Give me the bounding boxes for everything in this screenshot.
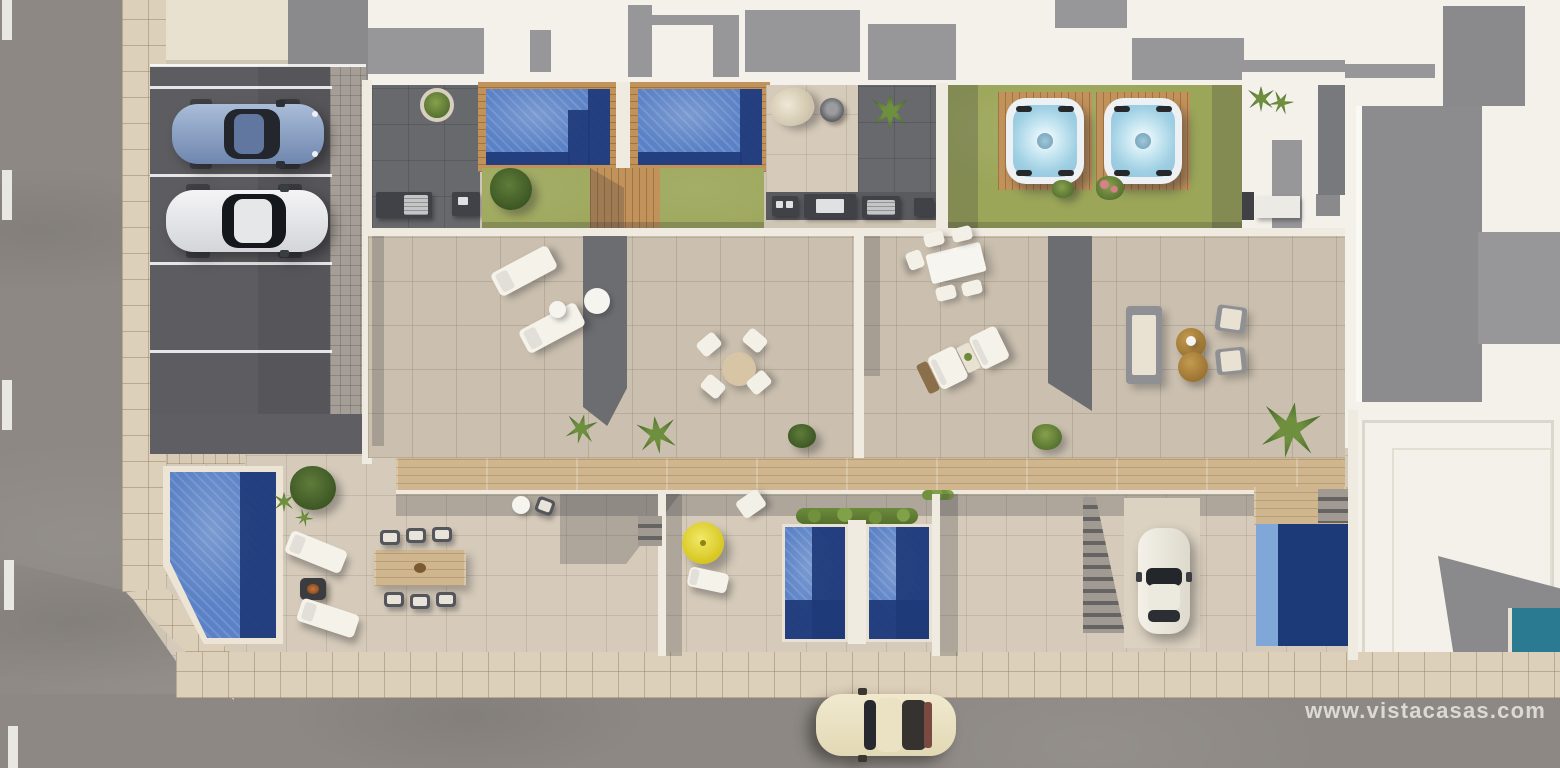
table-bowl	[414, 563, 426, 573]
dining-chair	[436, 592, 456, 607]
headrest-icon	[1114, 106, 1130, 112]
pouf	[1178, 352, 1208, 382]
garden-tree	[490, 168, 532, 210]
plunge-pool-2-deep	[869, 600, 929, 639]
bbq-grill-icon	[867, 200, 895, 215]
parking-line	[150, 262, 332, 265]
plunge-pool-1-deep	[785, 600, 845, 639]
headrest-icon	[1016, 106, 1032, 112]
round-table	[512, 496, 530, 514]
yellow-parasol	[682, 522, 724, 564]
pool-divider-wall	[848, 520, 866, 644]
pool-stairs	[1318, 489, 1348, 523]
lounge-armchair	[1215, 347, 1248, 376]
headrest-icon	[1156, 170, 1172, 176]
roof-patch	[713, 25, 739, 77]
roof-patch	[1242, 60, 1345, 72]
cobble-strip	[330, 66, 366, 426]
round-planter	[420, 88, 454, 122]
roof-patch	[643, 15, 739, 25]
roof-patch	[868, 24, 956, 80]
aerial-render: www.vistacasas.com	[0, 0, 1560, 768]
dining-chair	[410, 594, 430, 609]
roof-strip	[1318, 85, 1345, 195]
dining-chair	[380, 530, 400, 545]
lane-marking	[4, 560, 14, 610]
divider-wall-shadow	[1048, 236, 1092, 411]
sink-icon	[776, 201, 783, 208]
roof-patch	[1055, 0, 1127, 28]
wall-shadow	[666, 494, 682, 656]
lawn-shadow	[1212, 85, 1242, 235]
headrest-icon	[1058, 170, 1074, 176]
hot-tub-2	[1104, 98, 1182, 184]
balcony-walkway	[396, 458, 1345, 492]
plunge-pool-3-shelf	[1256, 524, 1278, 646]
roof-patch	[368, 28, 484, 74]
round-table	[584, 288, 610, 314]
building-wall	[936, 83, 948, 235]
shrub	[788, 424, 816, 448]
shrub	[1052, 180, 1074, 198]
entry-patio-2	[858, 85, 936, 195]
parking-line	[150, 174, 332, 177]
lane-marking	[8, 726, 18, 768]
roof-patch	[1132, 38, 1244, 80]
lane-marking	[2, 0, 12, 40]
side-table	[549, 301, 566, 318]
headrest-icon	[1016, 170, 1032, 176]
counter-top	[816, 199, 844, 213]
fire-pit	[300, 578, 326, 600]
bbq-kitchen	[804, 194, 856, 218]
watermark: www.vistacasas.com	[1305, 698, 1546, 724]
potted-tree	[290, 466, 336, 510]
pool-2-deep-shadow	[740, 89, 762, 165]
divider-shadow	[864, 236, 880, 376]
pool-2-deep-shadow	[638, 152, 742, 165]
lounge-sofa	[1126, 306, 1162, 384]
outdoor-fridge	[1242, 192, 1254, 220]
sink-icon	[786, 201, 793, 208]
headrest-icon	[1156, 106, 1172, 112]
tray-icon	[1186, 336, 1196, 346]
unit-wall	[932, 494, 940, 656]
bbq-kitchen	[862, 196, 900, 218]
cream-classic-car	[812, 686, 962, 764]
pool-1-deep-shadow	[486, 152, 570, 165]
parking-line	[150, 64, 366, 67]
bbq-kitchen	[1256, 196, 1300, 218]
lawn-shadow	[948, 85, 978, 235]
wood-dining-table	[374, 550, 466, 586]
sink-icon	[458, 197, 468, 205]
garden-pool-deep	[240, 472, 276, 638]
roof-patch	[1345, 64, 1435, 78]
skylight	[1316, 194, 1340, 216]
blue-coupe	[168, 98, 328, 170]
outdoor-sink-unit	[772, 196, 798, 216]
gray-roof-slab	[1362, 106, 1482, 402]
boundary-wall	[1348, 410, 1358, 660]
divider-wall	[854, 228, 864, 458]
headrest-icon	[1058, 106, 1074, 112]
roof-patch	[1478, 232, 1560, 344]
silver-sedan	[162, 182, 332, 260]
roof-patch	[1443, 6, 1525, 106]
plunge-pool-3	[1278, 524, 1348, 646]
lane-marking	[2, 380, 12, 430]
outdoor-unit	[914, 198, 934, 216]
roof-patch	[530, 30, 551, 72]
garden-stairs	[638, 516, 662, 546]
bbq-grill-icon	[404, 195, 428, 215]
tray-plant	[963, 352, 974, 363]
parking-line	[150, 350, 332, 353]
headrest-icon	[1114, 170, 1130, 176]
cream-roof-block	[160, 0, 290, 60]
hot-tub-center	[1037, 133, 1053, 149]
bbq-kitchen	[376, 192, 432, 218]
roof-patch	[745, 10, 860, 72]
lane-marking	[2, 170, 12, 220]
edge-shadow	[372, 236, 384, 446]
dining-chair	[406, 528, 426, 543]
parasol-base	[820, 98, 844, 122]
pool-1-deep-shadow	[568, 110, 590, 165]
lounge-armchair	[1214, 304, 1247, 334]
lawn-right	[948, 85, 1242, 235]
small-teal-pool	[1508, 608, 1560, 654]
pool-1-deep-shadow	[588, 89, 610, 165]
parking-lot-end	[150, 414, 366, 454]
divider-wall-shadow	[583, 236, 627, 426]
dining-chair	[384, 592, 404, 607]
wall-shadow	[940, 494, 958, 656]
hot-tub-1	[1006, 98, 1084, 184]
parking-line	[150, 86, 332, 89]
hot-tub-center	[1135, 133, 1151, 149]
flower-bush	[1096, 176, 1124, 200]
white-car	[1136, 524, 1192, 636]
shrub	[1032, 424, 1062, 450]
dining-chair	[432, 527, 452, 542]
outdoor-sink-unit	[452, 192, 480, 216]
